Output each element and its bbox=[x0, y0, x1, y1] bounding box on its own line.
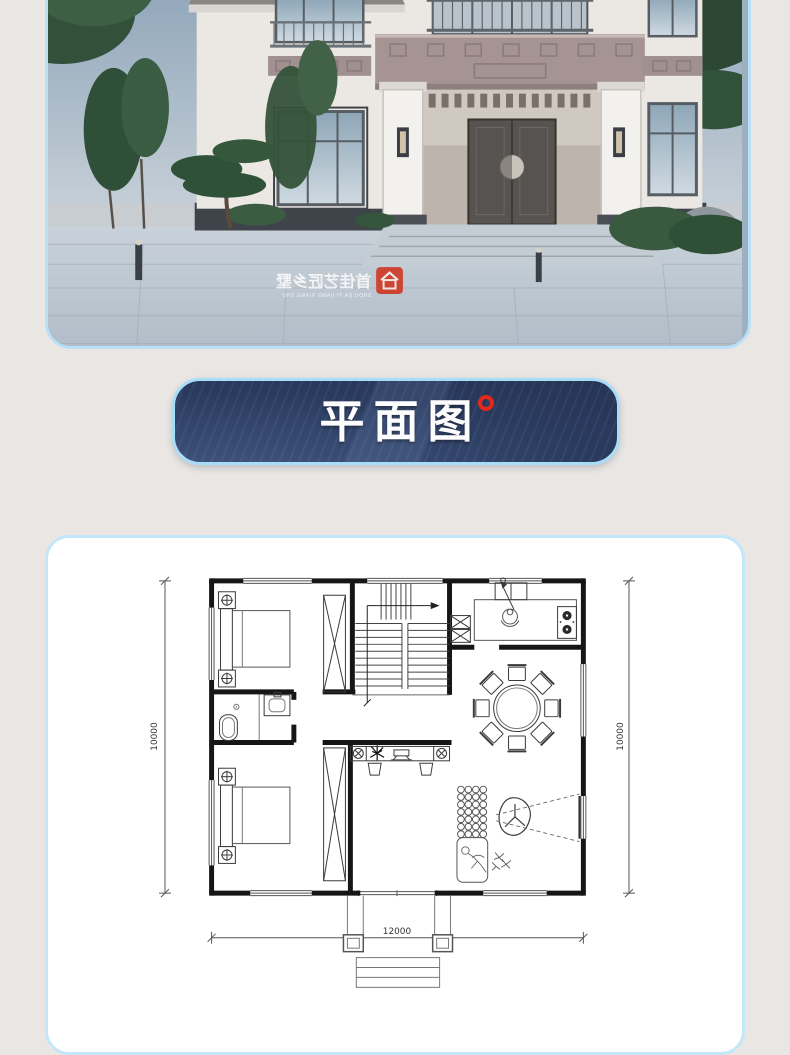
hero-image-card: 首佳艺匠乡墅 SHOU JIA YI JIANG XIANG SHU bbox=[45, 0, 751, 349]
red-dot-accent-icon bbox=[478, 395, 494, 411]
watermark-en-text: SHOU JIA YI JIANG XIANG SHU bbox=[282, 293, 371, 299]
entry-door bbox=[468, 119, 555, 224]
watermark-logo-icon bbox=[376, 267, 403, 294]
svg-text:10000: 10000 bbox=[150, 722, 160, 751]
center-balcony bbox=[427, 0, 594, 34]
portico-entablature bbox=[375, 34, 645, 90]
right-wing-lower-window bbox=[649, 104, 697, 195]
right-wing-fret-band bbox=[643, 56, 702, 76]
banner-title: 平面图 bbox=[310, 399, 481, 444]
section-banner-floorplan: 平面图 bbox=[172, 378, 620, 465]
svg-text:10000: 10000 bbox=[616, 722, 626, 751]
villa-render-illustration: 首佳艺匠乡墅 SHOU JIA YI JIANG XIANG SHU bbox=[48, 0, 742, 349]
floorplan-drawing: 10000 10000 12000 bbox=[48, 538, 742, 1054]
right-wing-upper-window bbox=[649, 0, 697, 36]
banner-title-text: 平面图 bbox=[319, 395, 481, 448]
porch-column bbox=[433, 935, 453, 952]
svg-text:12000: 12000 bbox=[383, 927, 412, 937]
floorplan-card: 10000 10000 12000 bbox=[45, 535, 745, 1055]
portico-column-right bbox=[597, 82, 645, 231]
portico-column-left bbox=[379, 82, 427, 231]
porch-column bbox=[343, 935, 363, 952]
watermark-cn-text: 首佳艺匠乡墅 bbox=[276, 272, 371, 291]
